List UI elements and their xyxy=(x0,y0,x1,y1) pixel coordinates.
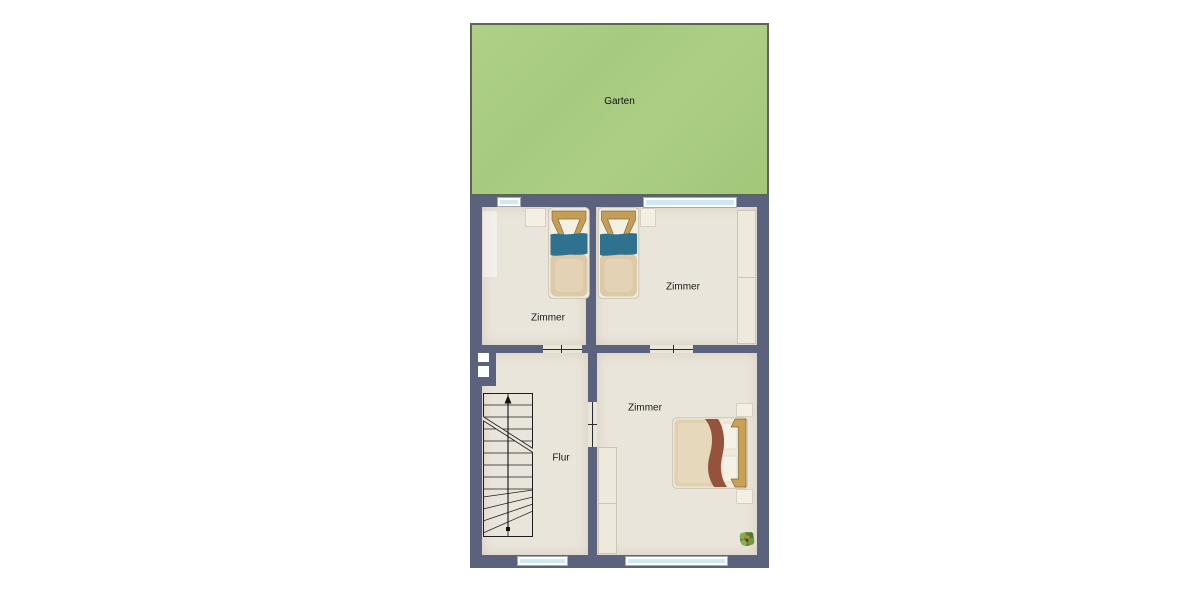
wardrobe-divider xyxy=(738,277,755,278)
closet-strip xyxy=(483,211,497,277)
wardrobe xyxy=(598,447,617,554)
door-opening xyxy=(650,345,693,353)
window-glass xyxy=(628,559,725,563)
double-bed-icon xyxy=(672,417,748,489)
floorplan-canvas: Garten xyxy=(0,0,1200,600)
door-tick xyxy=(561,345,562,353)
shaft-cell xyxy=(478,353,489,362)
wardrobe-divider xyxy=(599,503,616,504)
single-bed-icon xyxy=(548,207,590,299)
nightstand xyxy=(525,208,546,227)
wardrobe xyxy=(737,210,756,344)
door-sill xyxy=(543,349,582,350)
shaft-cell xyxy=(478,366,489,377)
window-glass xyxy=(520,559,565,563)
nightstand xyxy=(736,489,753,504)
window xyxy=(643,197,737,208)
room-label-bottom: Zimmer xyxy=(628,403,662,414)
plant-icon xyxy=(738,530,756,548)
window xyxy=(497,197,521,207)
room-label-top-right: Zimmer xyxy=(666,282,700,293)
building-plan: Zimmer Zimmer Zimmer Flur xyxy=(470,196,769,568)
window-glass xyxy=(646,200,734,205)
nightstand xyxy=(640,208,656,227)
room-label-hallway: Flur xyxy=(552,453,569,464)
window xyxy=(625,556,728,566)
garden-label: Garten xyxy=(472,96,767,107)
single-bed-icon xyxy=(597,207,640,299)
garden-area: Garten xyxy=(470,23,769,196)
door-opening xyxy=(543,345,582,353)
window xyxy=(517,556,568,566)
stairs-icon xyxy=(483,393,533,537)
window-glass xyxy=(500,200,518,204)
nightstand xyxy=(736,403,753,417)
door-opening xyxy=(588,402,597,447)
door-tick xyxy=(673,345,674,353)
room-label-top-left: Zimmer xyxy=(531,313,565,324)
door-tick xyxy=(588,424,597,425)
door-sill xyxy=(650,349,693,350)
